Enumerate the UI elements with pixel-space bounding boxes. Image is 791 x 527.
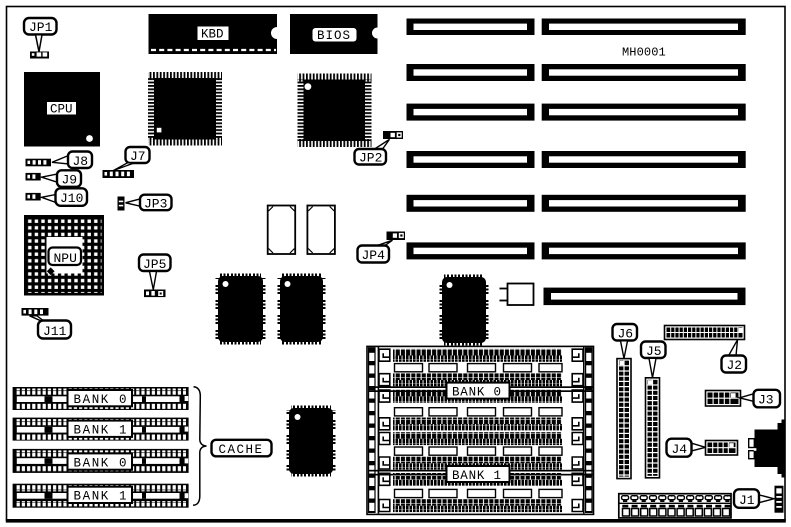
svg-text:J4: J4 [672, 442, 688, 457]
svg-text:J3: J3 [758, 393, 774, 408]
svg-text:BIOS: BIOS [317, 29, 351, 43]
svg-text:J9: J9 [62, 173, 78, 188]
svg-text:CACHE: CACHE [219, 443, 264, 457]
svg-text:BANK 0: BANK 0 [74, 456, 129, 470]
svg-text:JP4: JP4 [362, 248, 386, 263]
svg-text:CPU: CPU [50, 103, 73, 117]
svg-text:J7: J7 [130, 149, 146, 164]
svg-text:J8: J8 [73, 154, 89, 169]
svg-text:BANK 0: BANK 0 [74, 393, 129, 407]
svg-text:BANK 0: BANK 0 [452, 385, 502, 399]
svg-text:JP2: JP2 [359, 151, 382, 166]
svg-text:JP3: JP3 [144, 196, 167, 211]
svg-text:JP1: JP1 [29, 20, 53, 35]
svg-text:BANK 1: BANK 1 [452, 469, 502, 483]
svg-text:BANK 1: BANK 1 [74, 490, 129, 504]
svg-text:JP5: JP5 [143, 257, 166, 272]
svg-text:J6: J6 [618, 326, 634, 341]
svg-text:NPU: NPU [54, 251, 77, 266]
svg-text:J10: J10 [60, 191, 83, 206]
svg-text:J11: J11 [43, 324, 67, 339]
svg-text:BANK 1: BANK 1 [74, 424, 129, 438]
svg-text:J2: J2 [727, 358, 743, 373]
svg-text:J5: J5 [646, 344, 662, 359]
svg-text:MH0001: MH0001 [622, 46, 666, 60]
svg-text:KBD: KBD [201, 28, 224, 42]
svg-text:J1: J1 [739, 493, 755, 508]
